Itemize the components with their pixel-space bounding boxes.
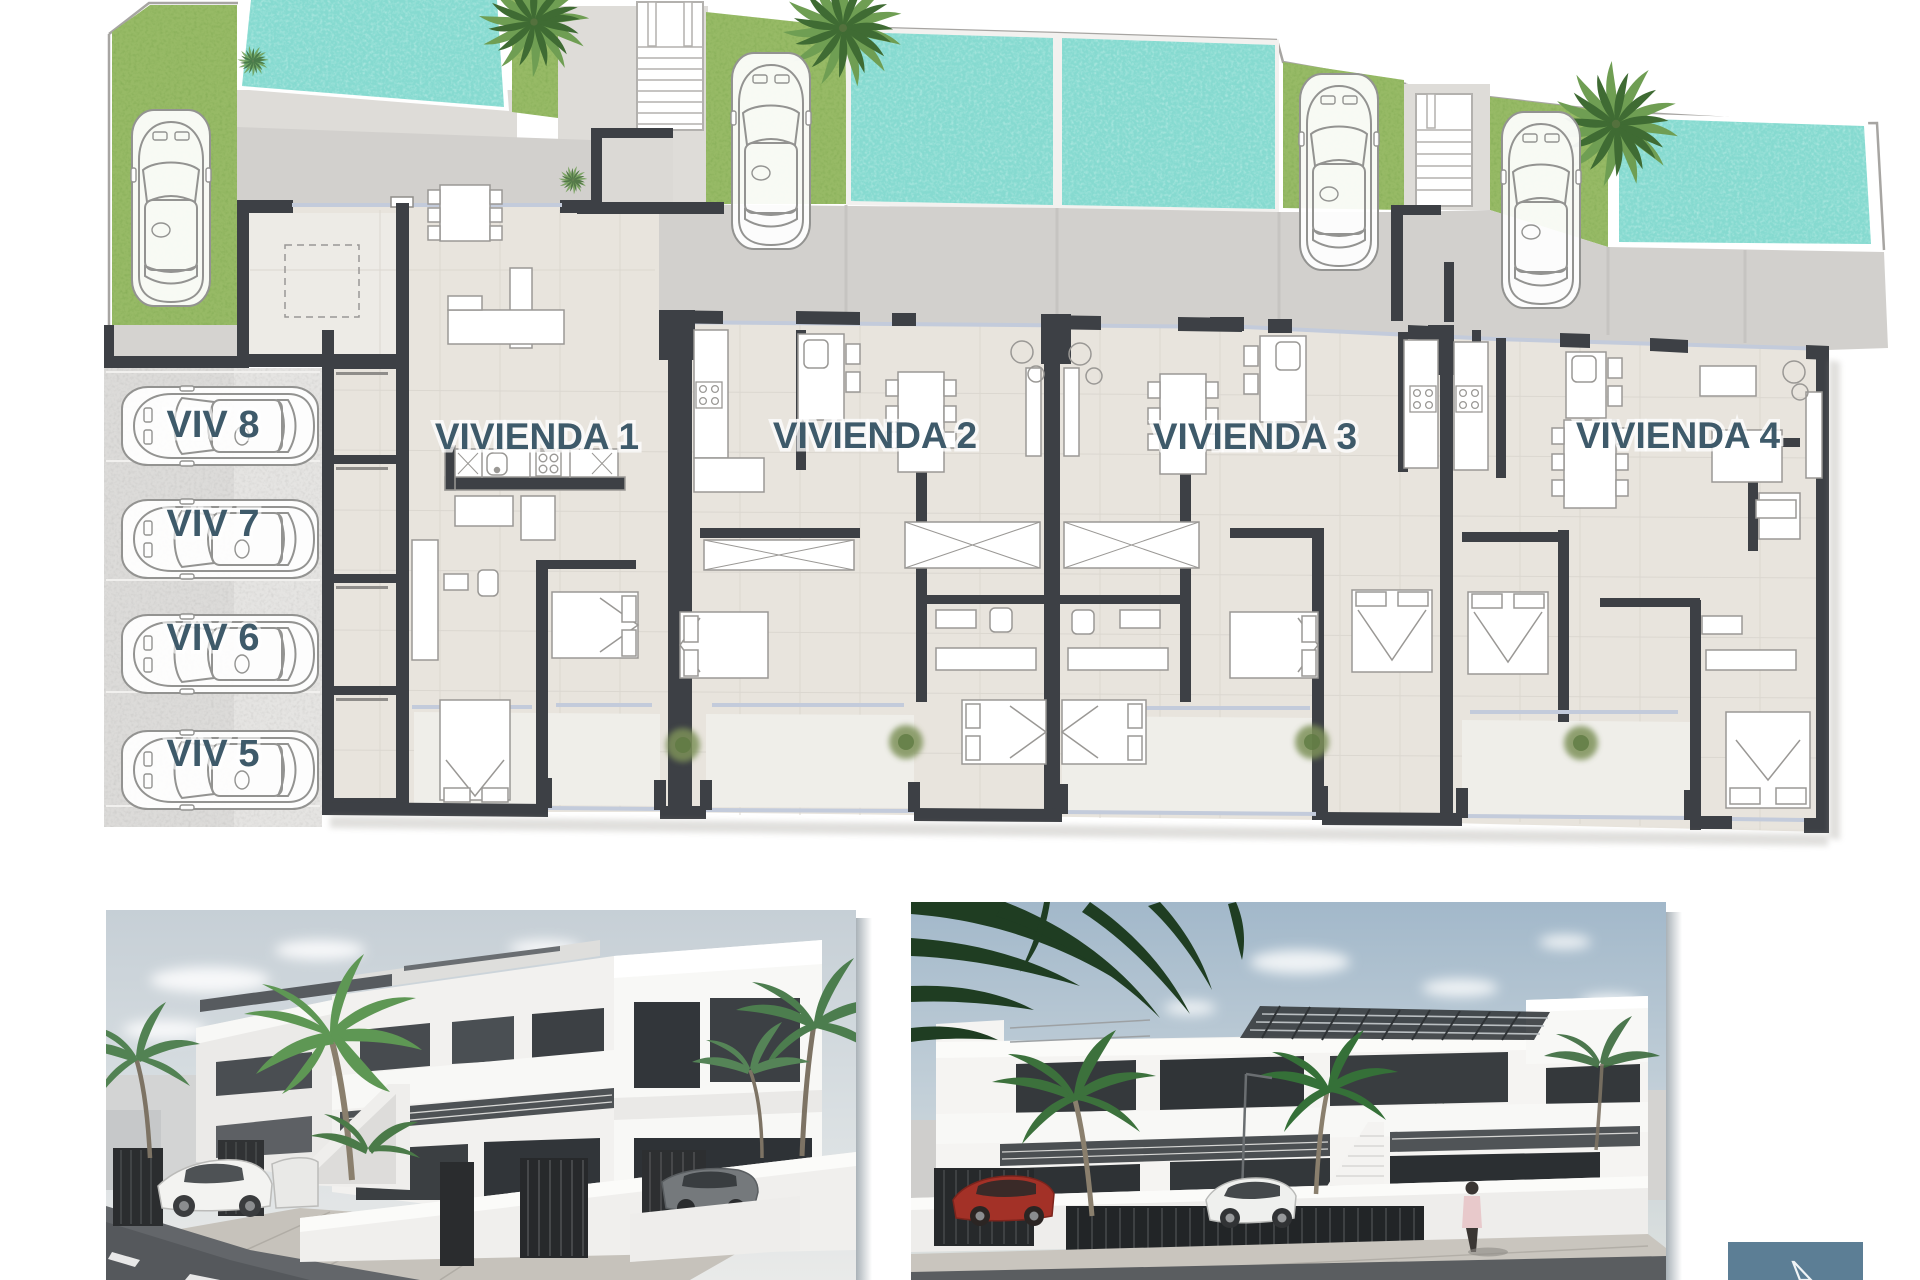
svg-text:VIV 7: VIV 7 [167, 503, 260, 545]
svg-text:VIVIENDA 3: VIVIENDA 3 [1153, 416, 1357, 457]
svg-text:VIV 8: VIV 8 [167, 404, 260, 446]
svg-text:VIV 6: VIV 6 [167, 617, 260, 659]
svg-text:VIV 5: VIV 5 [167, 733, 260, 775]
svg-text:VIVIENDA 4: VIVIENDA 4 [1576, 415, 1781, 456]
svg-text:VIVIENDA 2: VIVIENDA 2 [773, 415, 977, 456]
svg-text:VIVIENDA 1: VIVIENDA 1 [435, 416, 639, 457]
